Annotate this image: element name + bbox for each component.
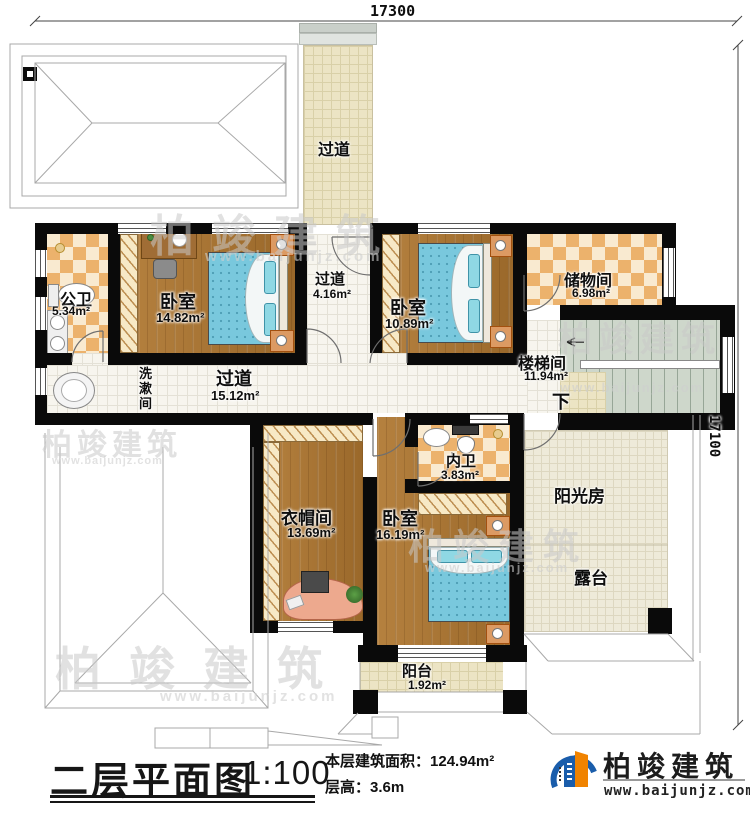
balcony-pillar-se: [503, 690, 527, 714]
roof-chimney-hole: [27, 71, 33, 77]
window-left-bath-b: [35, 297, 47, 330]
watermark-url: www.baijunjz.com: [160, 688, 337, 705]
nightstand: [270, 330, 294, 352]
plan-scale: 1:100: [243, 754, 331, 792]
passage-mid-floor-gap: [307, 353, 407, 365]
balcony-pillar-nw: [358, 645, 398, 662]
desk-plant-dot: [147, 234, 154, 241]
window-stair-right: [722, 337, 734, 393]
plan-area-value: 124.94m²: [430, 753, 494, 770]
plan-height-line: 层高：3.6m: [325, 776, 404, 797]
room-area-passage-mid: 4.16m²: [313, 287, 351, 301]
title-underline: [50, 795, 315, 798]
room-label-sunroom: 阳光房: [554, 482, 605, 507]
floor-plan-canvas: 柏竣建筑 www.baijunjz.com 柏竣建筑 www.baijunjz.…: [0, 0, 750, 816]
stair-top-wall-b: [560, 305, 735, 320]
bedroom1-wardrobe: [120, 234, 138, 353]
plan-area-line: 本层建筑面积：124.94m²: [325, 750, 494, 771]
cloakroom-monitor: [301, 571, 329, 593]
window-balcony: [398, 648, 486, 658]
cloakroom-left-wall: [250, 413, 263, 633]
title-underline-2: [50, 801, 315, 803]
brand-url: www.baijunjz.com: [604, 783, 750, 799]
porch-roof-band: [299, 23, 377, 33]
bath-door-gap: [72, 353, 108, 365]
porch-roof-band2: [299, 33, 377, 45]
nightstand: [486, 624, 510, 644]
sunroom-floor: [524, 430, 668, 632]
room-label-passage-top: 过道: [318, 136, 350, 160]
stair-handrail: [580, 360, 720, 369]
toilet-inner-tank: [452, 425, 479, 435]
balcony-pillar-sw: [353, 690, 378, 714]
hallway-floor: [47, 365, 558, 413]
window-top-a: [118, 223, 166, 234]
window-cloakroom-south: [278, 622, 333, 632]
window-storage-right: [663, 248, 675, 297]
room-label-washroom: 洗漱间: [139, 366, 155, 411]
room-area-stairwell: 11.94m²: [524, 369, 568, 383]
inner-bath-bottom-wall: [405, 481, 510, 493]
room-area-bedroom2: 10.89m²: [385, 316, 433, 331]
room-area-bedroom1: 14.82m²: [156, 310, 204, 325]
cloakroom-plant: [346, 586, 363, 603]
bath-washroom-stub: [47, 353, 72, 365]
plan-height-value: 3.6m: [370, 779, 404, 796]
cloakroom-wardrobe-left: [263, 442, 280, 621]
sink-inner-bath: [423, 428, 450, 447]
inner-bath-left-wall-a: [405, 413, 418, 447]
nightstand: [486, 516, 510, 536]
nightstand: [270, 234, 294, 256]
window-inner-bath: [470, 414, 508, 424]
hallway-south-wall: [35, 413, 373, 425]
stair-down-label: 下: [552, 388, 570, 414]
watermark-text: 柏竣建筑: [42, 420, 182, 464]
bedroom2-left-wall: [370, 223, 382, 353]
bedroom3-right-wall: [510, 413, 524, 662]
dim-top-value: 17300: [370, 2, 415, 20]
room-label-terrace: 露台: [574, 564, 608, 589]
plan-height-label: 层高：: [325, 779, 370, 796]
passage-top-floor: [303, 45, 373, 225]
window-top-bedroom1: [212, 223, 288, 234]
bedroom1-south-wall: [108, 353, 307, 365]
room-area-bedroom3: 16.19m²: [376, 527, 424, 542]
cloakroom-south-wall-a: [250, 621, 278, 633]
window-left-washroom: [35, 368, 47, 395]
dim-right-value: 17100: [706, 415, 722, 457]
bed-bedroom3: [428, 538, 510, 622]
room-area-inner-bath: 3.83m²: [441, 468, 479, 482]
sink-round: [50, 336, 65, 351]
brand-logo-icon: [545, 745, 601, 797]
desk-chair-bedroom1: [153, 259, 177, 279]
nightstand: [490, 326, 512, 348]
room-area-hallway: 15.12m²: [211, 388, 259, 403]
bedroom2-south-wall: [407, 353, 527, 365]
plan-area-label: 本层建筑面积：: [325, 753, 430, 770]
washroom-basin-inner: [61, 379, 87, 402]
window-left-bath-a: [35, 250, 47, 277]
desk-lamp-icon: [172, 232, 187, 247]
bedroom3-wardrobe: [418, 493, 507, 515]
balcony-pillar-ne: [486, 645, 527, 662]
watermark-text: 柏竣建筑: [55, 633, 351, 699]
bedroom2-right-wall: [513, 223, 527, 365]
brand-rule: [603, 779, 745, 781]
room-label-passage-mid: 过道: [315, 268, 345, 289]
floor-drain-icon: [55, 243, 65, 253]
terrace-pillar: [648, 608, 672, 634]
brand-logo: 柏竣建筑 www.baijunjz.com: [545, 745, 745, 805]
cloakroom-south-wall-b: [333, 621, 377, 633]
bedroom1-right-wall: [295, 223, 307, 353]
window-top-bedroom2: [418, 223, 490, 234]
stair-top-wall-a: [513, 305, 524, 320]
towel-ring-icon: [493, 429, 503, 439]
cloakroom-wardrobe-top: [263, 425, 363, 442]
room-area-storage: 6.98m²: [572, 286, 610, 300]
nightstand: [490, 235, 512, 257]
bath-bedroom1-wall: [108, 223, 120, 365]
watermark-url: www.baijunjz.com: [52, 455, 163, 467]
room-area-balcony: 1.92m²: [408, 678, 446, 692]
room-area-public-bath: 5.34m²: [52, 304, 90, 318]
room-area-cloakroom: 13.69m²: [287, 525, 335, 540]
